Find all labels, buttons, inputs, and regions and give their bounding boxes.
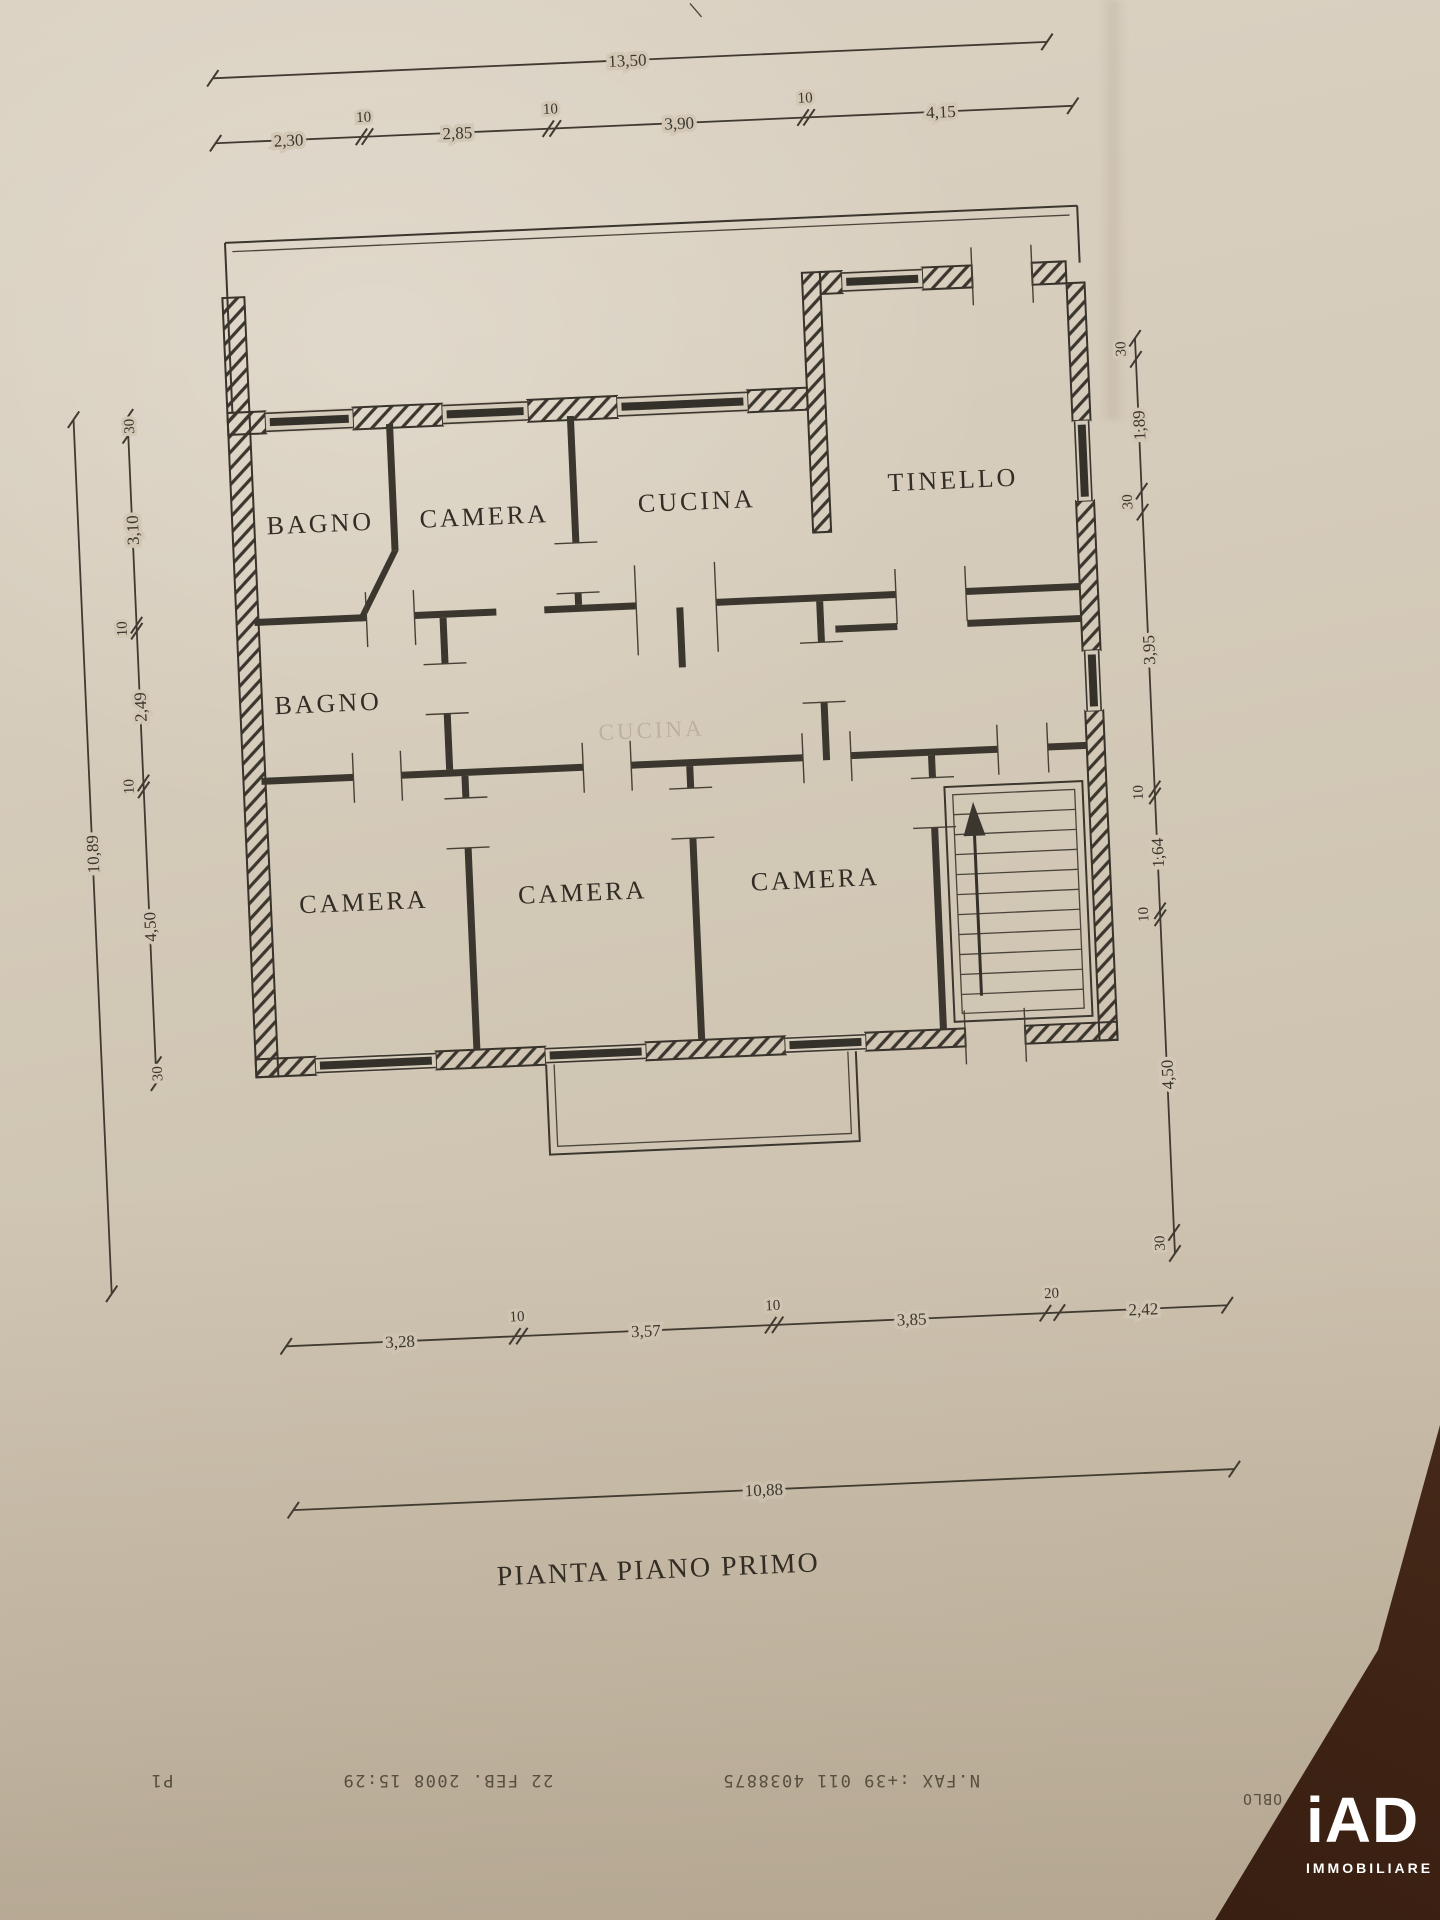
dim-label: 10 [765, 1298, 781, 1315]
room-label-camera-3: CAMERA [517, 875, 647, 910]
window [1083, 650, 1104, 711]
outer-walls [222, 260, 1117, 1077]
dim-top-segments: 2,30 10 2,85 10 3,90 10 4,15 [208, 79, 1079, 154]
terrace-outline [225, 206, 1085, 413]
fax-number: N.FAX :+39 011 4038875 [722, 1770, 980, 1790]
dim-label: 2,30 [273, 130, 304, 150]
fax-datetime: 22 FEB. 2008 15:29 [342, 1770, 553, 1790]
floorplan-scan: BAGNO CAMERA CUCINA TINELLO BAGNO CAMERA… [0, 0, 1440, 1920]
room-label-camera-4: CAMERA [750, 862, 880, 897]
dim-label: 3,85 [896, 1309, 927, 1329]
dim-label: 10 [797, 90, 813, 107]
dim-label: 10 [1136, 907, 1153, 923]
room-label-camera-2: CAMERA [299, 885, 429, 920]
dim-right-segments: 30 1,89 30 3,95 10 1,64 10 4,50 30 [1111, 330, 1186, 1263]
dim-label: 30 [1113, 341, 1130, 357]
iad-logo: iAD IMMOBILIARE [1306, 1788, 1433, 1876]
staircase [944, 781, 1092, 1022]
window [265, 408, 353, 434]
fax-header: N.FAX :+39 011 4038875 22 FEB. 2008 15:2… [150, 1770, 980, 1790]
dim-label: 3,10 [123, 515, 143, 546]
window [1073, 420, 1094, 501]
logo-brand: iAD [1306, 1788, 1433, 1852]
logo-subtitle: IMMOBILIARE [1306, 1860, 1433, 1876]
dim-label: 30 [150, 1066, 167, 1082]
dim-bottom-total: 10,88 [287, 1460, 1241, 1521]
dimension-lines: 13,50 2,30 10 2,85 10 3,90 10 4,15 10,89 [50, 27, 1241, 1528]
dim-label: 10 [114, 621, 131, 637]
dim-label: 3,95 [1139, 635, 1159, 666]
dim-label: 20 [1044, 1286, 1060, 1303]
dim-label: 13,50 [608, 50, 647, 71]
room-label-bagno: BAGNO [266, 507, 375, 541]
fax-page-number: P1 [150, 1770, 173, 1790]
dim-label: 4,50 [1158, 1059, 1178, 1090]
plan-title: PIANTA PIANO PRIMO [496, 1547, 820, 1592]
dim-label: 2,85 [442, 123, 473, 143]
dim-label: 30 [1152, 1235, 1169, 1251]
room-label-bagno-2: BAGNO [274, 687, 383, 721]
room-labels: BAGNO CAMERA CUCINA TINELLO BAGNO CAMERA… [265, 463, 1036, 920]
window [442, 400, 528, 426]
window [545, 1042, 646, 1064]
stairs-up-arrow-icon [962, 801, 992, 996]
dim-label: 10,88 [744, 1480, 783, 1501]
bleedthrough-ghost-label: CUCINA [598, 715, 705, 745]
dim-label: 10 [543, 101, 559, 118]
dim-label: 4,50 [140, 912, 160, 943]
dim-label: 2,42 [1128, 1299, 1159, 1319]
dim-label: 30 [1120, 494, 1137, 510]
scan-stray-mark [690, 3, 702, 17]
window [316, 1052, 437, 1075]
porch-outline [546, 1051, 860, 1154]
dim-label: 10 [356, 109, 372, 126]
dim-label: 3,28 [385, 1332, 416, 1352]
dim-left-segments: 30 3,10 10 2,49 10 4,50 30 [105, 409, 167, 1092]
room-label-cucina: CUCINA [637, 484, 756, 518]
dim-bottom-segments: 3,28 10 3,57 10 3,85 20 2,42 [279, 1278, 1234, 1357]
dim-left-total: 10,89 [64, 411, 122, 1302]
window [617, 390, 748, 418]
dim-label: 2,49 [130, 692, 150, 723]
room-label-tinello: TINELLO [887, 463, 1019, 498]
plan-group: BAGNO CAMERA CUCINA TINELLO BAGNO CAMERA… [48, 0, 1245, 1609]
dim-label: 10,89 [83, 835, 104, 874]
room-label-camera: CAMERA [419, 499, 549, 534]
dim-top-total: 13,50 [206, 33, 1053, 89]
dim-label: 10 [121, 779, 138, 795]
scanned-floorplan-page: { "document": { "plan_title": "PIANTA PI… [0, 0, 1440, 1920]
dim-label: 1,89 [1129, 410, 1149, 441]
dim-label: 3,90 [664, 113, 695, 133]
dim-label: 4,15 [926, 102, 957, 122]
window [785, 1033, 866, 1054]
window [842, 268, 923, 293]
dim-label: 10 [509, 1309, 525, 1326]
dim-label: 30 [122, 418, 139, 434]
dim-label: 3,57 [631, 1321, 662, 1341]
dim-label: 1,64 [1148, 837, 1168, 868]
dim-label: 10 [1130, 785, 1147, 801]
